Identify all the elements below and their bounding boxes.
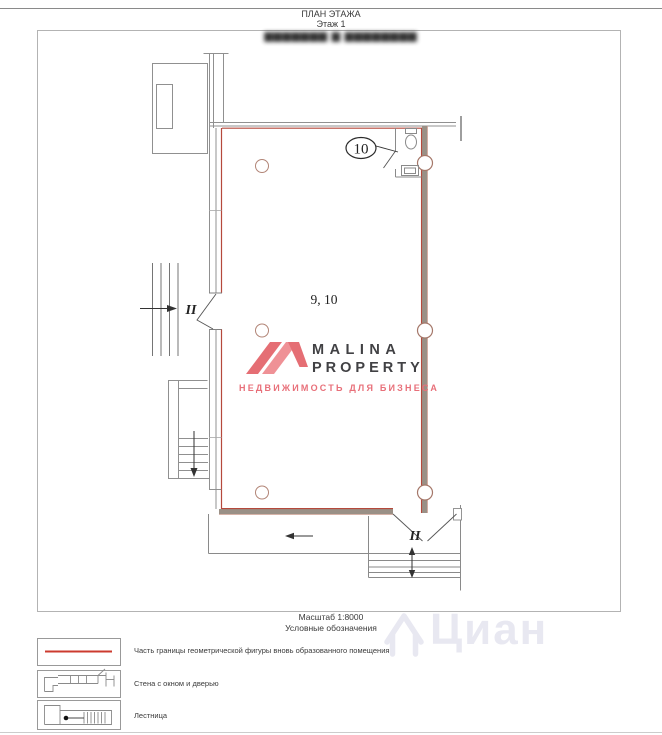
page-subtitle: Этаж 1 [0,19,662,29]
legend-item-label-stairs: Лестница [134,711,434,720]
wall-right [422,126,428,513]
room-label: 9, 10 [311,292,338,307]
page-header: ПЛАН ЭТАЖА Этаж 1 [0,9,662,29]
legend-symbol-wall-icon [38,669,121,698]
malina-logo-name: MALINA [312,342,401,358]
wall-bottom [219,509,393,515]
legend-caption: Условные обозначения [0,623,662,634]
malina-logo-tagline: НЕДВИЖИМОСТЬ ДЛЯ БИЗНЕСА [239,383,439,393]
door-bottom-swing [393,509,462,542]
porch-bottom [209,505,461,591]
bathroom-callout-label: 10 [354,142,369,158]
malina-logo: MALINA PROPERTY НЕДВИЖИМОСТЬ ДЛЯ БИЗНЕСА [238,336,443,396]
arrow-left-icon [285,533,294,539]
wall-left [209,128,222,509]
malina-logo-name2: PROPERTY [312,360,424,376]
bathroom [384,128,422,177]
arrow-up-icon [409,547,415,555]
censored-address: ▆▆▆▆▆▆▆ ▆ ▆▆▆▆▆▆▆▆ [253,30,429,44]
left-door-label: II [185,303,197,318]
page-title: ПЛАН ЭТАЖА [0,9,662,19]
stairs-mid-left [140,263,178,356]
legend-item-label-boundary: Часть границы геометрической фигуры внов… [134,646,434,655]
scale-caption: Масштаб 1:8000 [0,612,662,623]
door-left-swing [197,294,216,329]
plan-captions: Масштаб 1:8000 Условные обозначения [0,612,662,634]
arrow-down-icon [191,468,198,477]
legend-symbol-stairs-icon [38,701,121,730]
toilet-icon [406,129,417,134]
annex-top-left [153,64,208,154]
legend-item-label-wall: Стена с окном и дверью [134,679,434,688]
sheet-border [38,31,621,612]
arrow-right-icon [167,305,177,312]
annex-bottom-left [169,381,210,479]
legend-symbol-red-line-icon [38,639,121,666]
bottom-door-label: II [409,529,421,544]
columns [256,156,433,501]
bathroom-callout: 10 [346,138,398,159]
arrow-down-icon [409,570,415,578]
